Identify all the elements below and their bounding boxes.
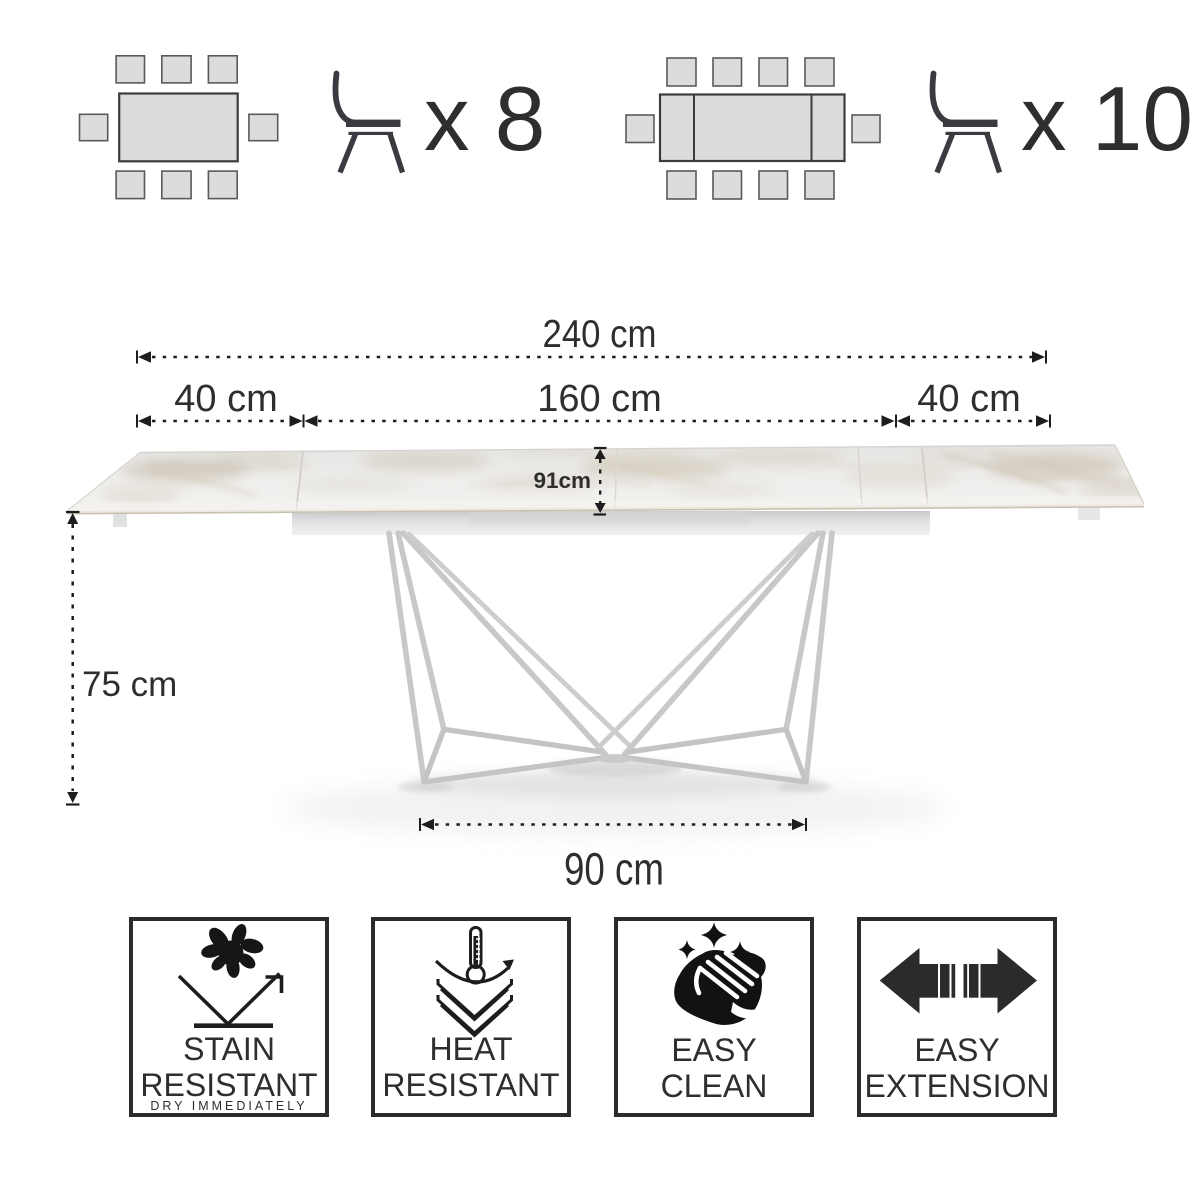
svg-text:90 cm: 90 cm <box>564 844 664 895</box>
svg-text:91cm: 91cm <box>533 468 591 493</box>
svg-text:160 cm: 160 cm <box>537 378 662 420</box>
svg-text:HEAT: HEAT <box>430 1031 513 1067</box>
svg-text:STAIN: STAIN <box>183 1031 275 1067</box>
svg-text:RESISTANT: RESISTANT <box>382 1067 559 1103</box>
svg-text:RESISTANT: RESISTANT <box>140 1067 317 1103</box>
svg-text:EASY: EASY <box>671 1032 756 1068</box>
svg-text:40 cm: 40 cm <box>174 378 277 420</box>
svg-text:EASY: EASY <box>914 1032 999 1068</box>
svg-text:x 10: x 10 <box>1021 69 1193 170</box>
svg-text:CLEAN: CLEAN <box>661 1068 768 1104</box>
svg-text:DRY IMMEDIATELY: DRY IMMEDIATELY <box>150 1099 307 1113</box>
svg-text:40 cm: 40 cm <box>917 378 1020 420</box>
svg-text:240 cm: 240 cm <box>543 313 657 356</box>
svg-text:EXTENSION: EXTENSION <box>865 1068 1050 1104</box>
svg-text:x 8: x 8 <box>424 69 545 170</box>
svg-text:75 cm: 75 cm <box>82 665 177 704</box>
